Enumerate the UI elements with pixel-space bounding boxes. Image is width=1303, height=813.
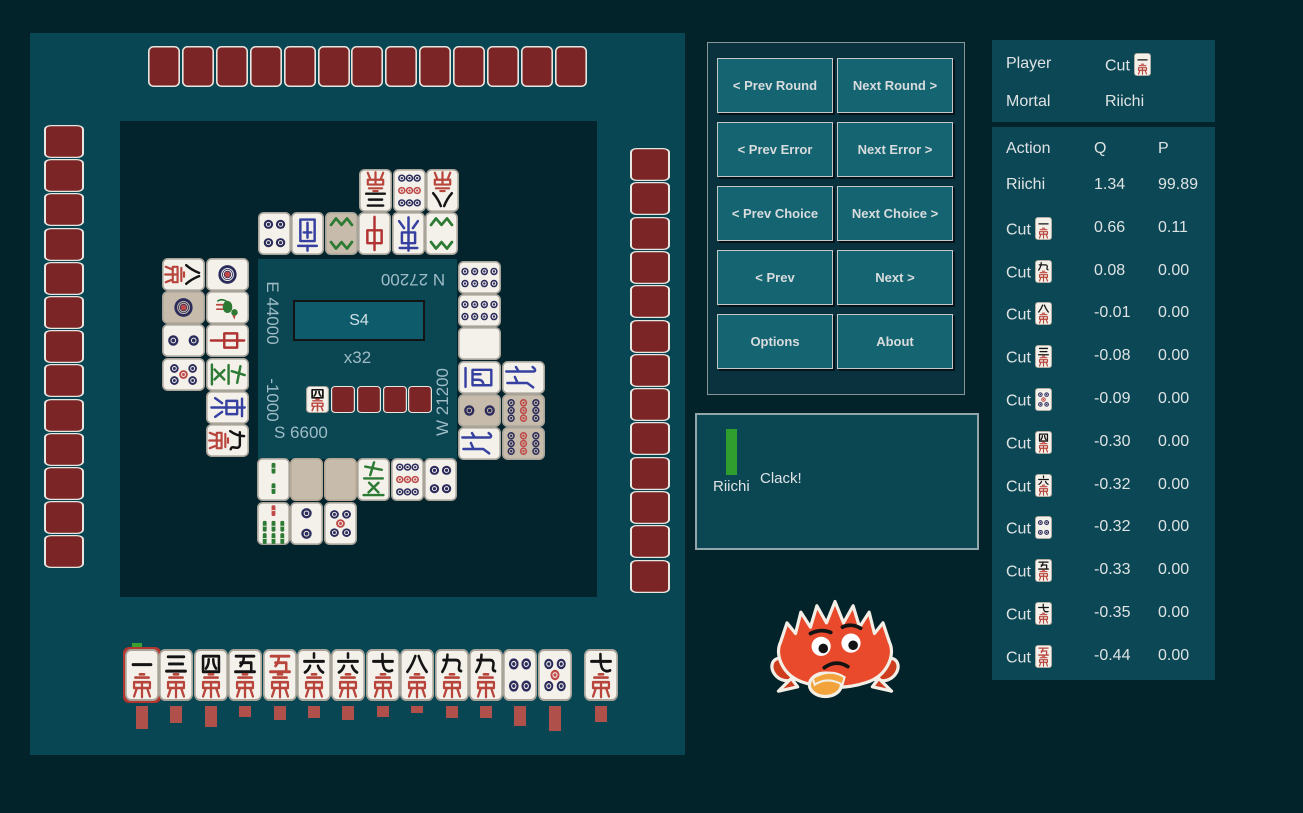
- mortal-review-app: S4 x32 E 44000 -1000 N 27200 W 21200 S 6…: [0, 0, 1303, 813]
- hand-tile-bar: [514, 706, 526, 726]
- tile-5p: [324, 502, 357, 545]
- tile-E: [392, 212, 425, 255]
- east-hand-tile-back: [44, 364, 84, 397]
- action-tile-7m: [1035, 602, 1052, 625]
- tile-9p: [393, 169, 426, 212]
- west-hand-tile-back: [630, 182, 670, 215]
- tile-8p: [458, 294, 501, 327]
- west-hand-tile-back: [630, 251, 670, 284]
- hand-tile-bar: [170, 706, 182, 723]
- tile-F: [206, 358, 249, 391]
- tile-8s-tan: [325, 212, 358, 255]
- east-hand-tile-back: [44, 467, 84, 500]
- tile-3m: [359, 169, 392, 212]
- hand-tile-bar: [136, 706, 148, 729]
- hand-tile-7m[interactable]: [366, 649, 400, 701]
- nav-button-prev-round[interactable]: < Prev Round: [717, 58, 833, 113]
- nav-button-next-error[interactable]: Next Error >: [837, 122, 953, 177]
- hand-tile-bar: [446, 706, 458, 718]
- action-prob-label: Riichi: [713, 478, 750, 495]
- west-hand-tile-back: [630, 388, 670, 421]
- east-hand-tile-back: [44, 501, 84, 534]
- action-tile-4m: [1035, 431, 1052, 454]
- west-hand-tile-back: [630, 491, 670, 524]
- north-hand-tile-back: [487, 46, 519, 87]
- hand-tile-bar: [411, 706, 423, 713]
- tile-C: [206, 324, 249, 357]
- tile-9p: [391, 458, 424, 501]
- north-hand-tile-back: [419, 46, 451, 87]
- dora-hidden-tile: [383, 386, 407, 413]
- drawn-tile-bar: [595, 706, 607, 722]
- mortal-label: Mortal: [1006, 93, 1050, 111]
- event-text: Clack!: [760, 470, 802, 487]
- tile-C: [358, 212, 391, 255]
- action-tile-1m: [1035, 217, 1052, 240]
- tile-1p: [206, 258, 249, 291]
- east-hand-tile-back: [44, 399, 84, 432]
- west-hand-tile-back: [630, 148, 670, 181]
- west-hand-tile-back: [630, 320, 670, 353]
- north-hand-tile-back: [521, 46, 553, 87]
- west-hand-tile-back: [630, 354, 670, 387]
- east-hand-tile-back: [44, 159, 84, 192]
- ferris-thinking-mascot: [765, 593, 905, 705]
- tile-7s: [257, 502, 290, 545]
- tile-2p: [162, 324, 205, 357]
- drawn-tile-7m[interactable]: [584, 649, 618, 701]
- col-header-action: Action: [1006, 140, 1050, 158]
- tile-8m: [426, 169, 459, 212]
- east-hand-tile-back: [44, 262, 84, 295]
- tile-9m: [206, 424, 249, 457]
- tile-E: [206, 391, 249, 424]
- tile-1s: [206, 291, 249, 324]
- tile-4p: [258, 212, 291, 255]
- tile-1p-tan: [162, 291, 205, 324]
- hand-tile-bar: [308, 706, 320, 718]
- hand-tile-0m[interactable]: [263, 649, 297, 701]
- tile-8s: [425, 212, 458, 255]
- north-hand-tile-back: [216, 46, 248, 87]
- east-hand-tile-back: [44, 296, 84, 329]
- west-hand-tile-back: [630, 525, 670, 558]
- north-hand-tile-back: [351, 46, 383, 87]
- east-hand-tile-back: [44, 125, 84, 158]
- hand-tile-bar: [239, 706, 251, 717]
- hand-tile-bar: [205, 706, 217, 727]
- east-hand-tile-back: [44, 228, 84, 261]
- nav-button-prev[interactable]: < Prev: [717, 250, 833, 305]
- tile-W: [458, 361, 501, 394]
- player-action: Cut: [1105, 55, 1151, 78]
- tile-tan: [290, 458, 323, 501]
- hand-tile-5p[interactable]: [538, 649, 572, 701]
- score-east: E 44000: [262, 268, 282, 358]
- hand-tile-bar: [274, 706, 286, 720]
- tile-2p: [290, 502, 323, 545]
- hand-tile-9m[interactable]: [435, 649, 469, 701]
- tile-8m: [162, 258, 205, 291]
- north-hand-tile-back: [555, 46, 587, 87]
- action-tile-0m: [1035, 645, 1052, 668]
- west-hand-tile-back: [630, 285, 670, 318]
- col-header-q: Q: [1094, 140, 1106, 158]
- nav-button-prev-error[interactable]: < Prev Error: [717, 122, 833, 177]
- hand-tile-8m[interactable]: [400, 649, 434, 701]
- north-hand-tile-back: [385, 46, 417, 87]
- tile-4p: [424, 458, 457, 501]
- tile-9p-tan: [502, 427, 545, 460]
- west-hand-tile-back: [630, 422, 670, 455]
- hand-tile-4m[interactable]: [194, 649, 228, 701]
- west-hand-tile-back: [630, 217, 670, 250]
- dora-indicator-tile: [306, 386, 329, 413]
- tile-N: [458, 427, 501, 460]
- dora-hidden-tile: [408, 386, 432, 413]
- nav-button-next[interactable]: Next >: [837, 250, 953, 305]
- score-north: N 27200: [368, 269, 458, 289]
- nav-button-next-choice[interactable]: Next Choice >: [837, 186, 953, 241]
- action-tile-4p: [1035, 516, 1052, 539]
- action-tile-3m: [1035, 345, 1052, 368]
- hand-tile-6m[interactable]: [331, 649, 365, 701]
- north-hand-tile-back: [182, 46, 214, 87]
- east-hand-tile-back: [44, 330, 84, 363]
- col-header-p: P: [1158, 140, 1169, 158]
- tile-F: [357, 458, 390, 501]
- score-west: W 21200: [433, 357, 453, 447]
- west-hand-tile-back: [630, 457, 670, 490]
- round-indicator: S4: [293, 300, 425, 341]
- mortal-action: Riichi: [1105, 93, 1144, 111]
- nav-button-prev-choice[interactable]: < Prev Choice: [717, 186, 833, 241]
- score-south: S 6600: [274, 423, 364, 443]
- dora-hidden-tile: [331, 386, 355, 413]
- north-hand-tile-back: [250, 46, 282, 87]
- hand-tile-bar: [342, 706, 354, 720]
- hand-tile-1m[interactable]: [125, 649, 159, 701]
- north-hand-tile-back: [453, 46, 485, 87]
- action-prob-bar: [726, 429, 737, 475]
- tile-8p: [458, 261, 501, 294]
- east-hand-tile-back: [44, 433, 84, 466]
- tile-2p-tan: [458, 394, 501, 427]
- tile-2s: [257, 458, 290, 501]
- hand-tile-5m[interactable]: [228, 649, 262, 701]
- hand-tile-bar: [549, 706, 561, 731]
- dora-hidden-tile: [357, 386, 381, 413]
- hand-tile-9m[interactable]: [469, 649, 503, 701]
- chosen-move-tick: [132, 643, 142, 648]
- action-tile-8m: [1035, 302, 1052, 325]
- tile-5p: [162, 358, 205, 391]
- tile-9p-tan: [502, 394, 545, 427]
- east-hand-tile-back: [44, 193, 84, 226]
- nav-button-about[interactable]: About: [837, 314, 953, 369]
- action-tile-6m: [1035, 474, 1052, 497]
- hand-tile-bar: [377, 706, 389, 717]
- east-hand-tile-back: [44, 535, 84, 568]
- north-hand-tile-back: [284, 46, 316, 87]
- action-tile-5m: [1035, 559, 1052, 582]
- tile-P: [458, 327, 501, 360]
- wall-count: x32: [258, 348, 457, 368]
- action-tile-9m: [1035, 260, 1052, 283]
- tile-tan: [324, 458, 357, 501]
- north-hand-tile-back: [318, 46, 350, 87]
- hand-tile-6m[interactable]: [297, 649, 331, 701]
- round-label: S4: [349, 312, 369, 330]
- nav-button-options[interactable]: Options: [717, 314, 833, 369]
- thinking-hand: [809, 673, 844, 697]
- hand-tile-4p[interactable]: [503, 649, 537, 701]
- hand-tile-3m[interactable]: [159, 649, 193, 701]
- player-cut-tile-1m: [1134, 53, 1151, 76]
- tile-S: [291, 212, 324, 255]
- action-tile-5p: [1035, 388, 1052, 411]
- north-hand-tile-back: [148, 46, 180, 87]
- nav-button-next-round[interactable]: Next Round >: [837, 58, 953, 113]
- tile-N: [502, 361, 545, 394]
- player-label: Player: [1006, 55, 1051, 73]
- hand-tile-bar: [480, 706, 492, 718]
- west-hand-tile-back: [630, 560, 670, 593]
